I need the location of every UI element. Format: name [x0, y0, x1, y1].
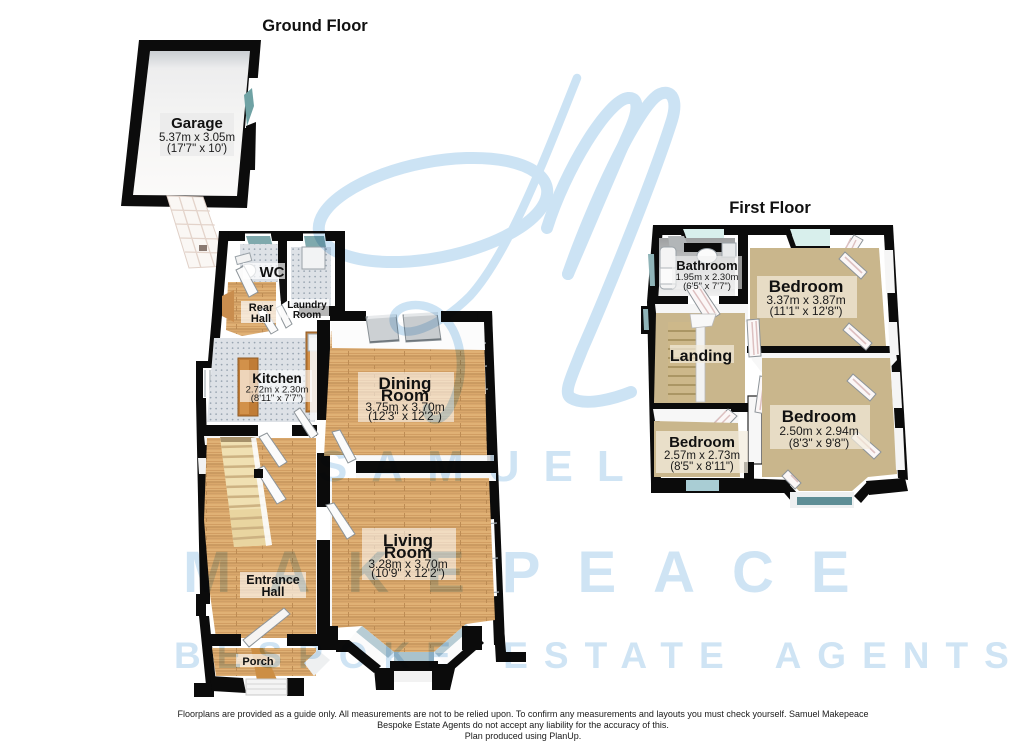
svg-text:(11'1" x 12'8"): (11'1" x 12'8") — [770, 304, 843, 318]
svg-text:(8'3" x 9'8"): (8'3" x 9'8") — [789, 436, 849, 450]
svg-text:Plan produced using PlanUp.: Plan produced using PlanUp. — [465, 731, 582, 741]
svg-text:Bathroom: Bathroom — [676, 258, 737, 273]
svg-text:(8'5" x 8'11"): (8'5" x 8'11") — [670, 461, 734, 473]
svg-text:SAMUEL: SAMUEL — [318, 442, 648, 491]
svg-text:MAKEPEACE: MAKEPEACE — [183, 540, 887, 605]
svg-text:WC: WC — [260, 264, 285, 281]
svg-text:First Floor: First Floor — [729, 199, 811, 217]
svg-text:Room: Room — [293, 310, 321, 321]
svg-text:Garage: Garage — [171, 115, 223, 132]
svg-text:(8'11" x 7'7"): (8'11" x 7'7") — [251, 393, 303, 404]
svg-text:Ground Floor: Ground Floor — [262, 17, 368, 35]
svg-text:Floorplans are provided as a g: Floorplans are provided as a guide only.… — [177, 709, 868, 719]
svg-text:BESPOKE ESTATE AGENTS: BESPOKE ESTATE AGENTS — [174, 635, 1024, 676]
svg-text:(17'7" x 10'): (17'7" x 10') — [167, 143, 227, 155]
svg-text:Bedroom: Bedroom — [669, 434, 735, 451]
svg-text:Landing: Landing — [670, 348, 732, 365]
svg-text:Bespoke Estate Agents do not a: Bespoke Estate Agents do not accept any … — [377, 720, 669, 730]
svg-text:(6'5" x 7'7"): (6'5" x 7'7") — [683, 281, 731, 292]
svg-text:Hall: Hall — [251, 313, 271, 325]
